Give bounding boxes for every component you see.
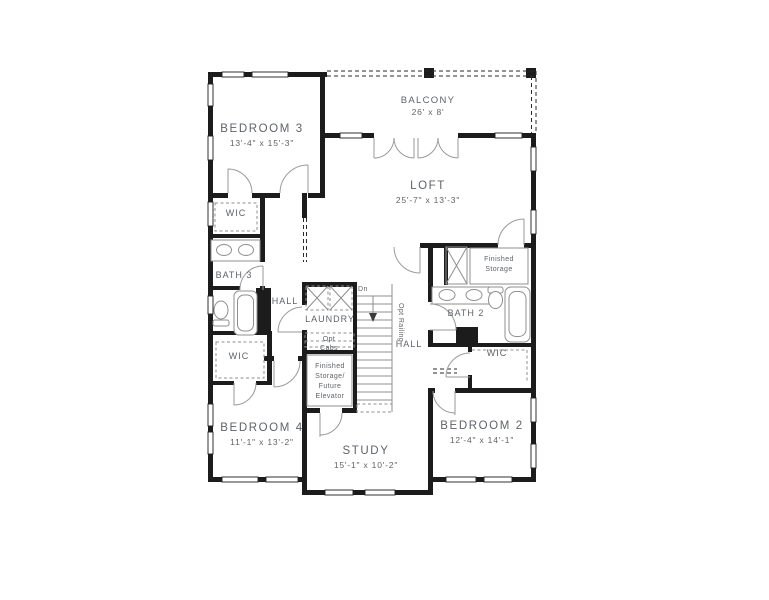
room-label-bedroom2: BEDROOM 2 — [440, 420, 523, 432]
stairs-symbol — [357, 284, 392, 412]
room-dims-bedroom3: 13'-4" x 15'-3" — [230, 138, 294, 148]
room-label-balcony: BALCONY — [401, 95, 456, 106]
room-dims-bedroom2: 12'-4" x 14'-1" — [450, 435, 514, 445]
stair-down-arrow — [369, 313, 377, 322]
bath2-vanity-symbol — [432, 287, 490, 304]
floor-plan: BEDROOM 3 13'-4" x 15'-3" BALCONY 26' x … — [0, 0, 769, 600]
stairs-railing-label: Opt Railing — [397, 303, 404, 342]
storage-elevator-line-1: Finished — [315, 363, 345, 370]
opt-cabs-line-2: Cabs — [320, 345, 338, 352]
finished-storage-line-2: Storage — [485, 266, 512, 273]
storage-elevator-line-4: Elevator — [316, 393, 345, 400]
bath2-tub-symbol — [505, 287, 530, 342]
storage-elevator-line-2: Storage/ — [315, 373, 345, 380]
room-dims-loft: 25'-7" x 13'-3" — [396, 195, 460, 205]
stairs-down-label: Dn — [358, 286, 368, 293]
room-dims-balcony: 26' x 8' — [412, 107, 445, 117]
room-label-hall-left: HALL — [272, 296, 299, 306]
bath3-tub-symbol — [234, 291, 257, 335]
chase-symbol — [446, 247, 467, 284]
room-label-hall-right: HALL — [396, 339, 423, 349]
bath2-toilet-symbol — [488, 287, 503, 309]
room-label-laundry: LAUNDRY — [305, 314, 355, 324]
storage-elevator-line-3: Future — [319, 383, 342, 390]
stair-cut — [357, 404, 392, 412]
room-label-loft: LOFT — [410, 180, 446, 192]
room-label-wic4: WIC — [229, 351, 250, 361]
room-dims-bedroom4: 11'-1" x 13'-2" — [230, 437, 294, 447]
room-label-bath3: BATH 3 — [216, 270, 253, 280]
finished-storage-line-1: Finished — [484, 256, 514, 263]
labels: BEDROOM 3 13'-4" x 15'-3" BALCONY 26' x … — [216, 95, 524, 470]
bath3-vanity-symbol — [211, 240, 260, 261]
washer-dryer-symbol — [306, 286, 352, 310]
room-dims-study: 15'-1" x 10'-2" — [334, 460, 398, 470]
room-label-bedroom4: BEDROOM 4 — [220, 422, 303, 434]
room-label-wic3: WIC — [226, 208, 247, 218]
opt-cabs-line-1: Opt — [323, 336, 335, 343]
bath3-toilet-symbol — [213, 301, 229, 326]
room-label-study: STUDY — [343, 445, 390, 457]
optional-opening — [433, 369, 457, 373]
floor-plan-page: BEDROOM 3 13'-4" x 15'-3" BALCONY 26' x … — [0, 0, 769, 600]
optional-wall — [304, 218, 307, 262]
room-label-bath2: BATH 2 — [448, 308, 485, 318]
room-label-bedroom3: BEDROOM 3 — [220, 123, 303, 135]
room-label-wic2: WIC — [487, 348, 508, 358]
